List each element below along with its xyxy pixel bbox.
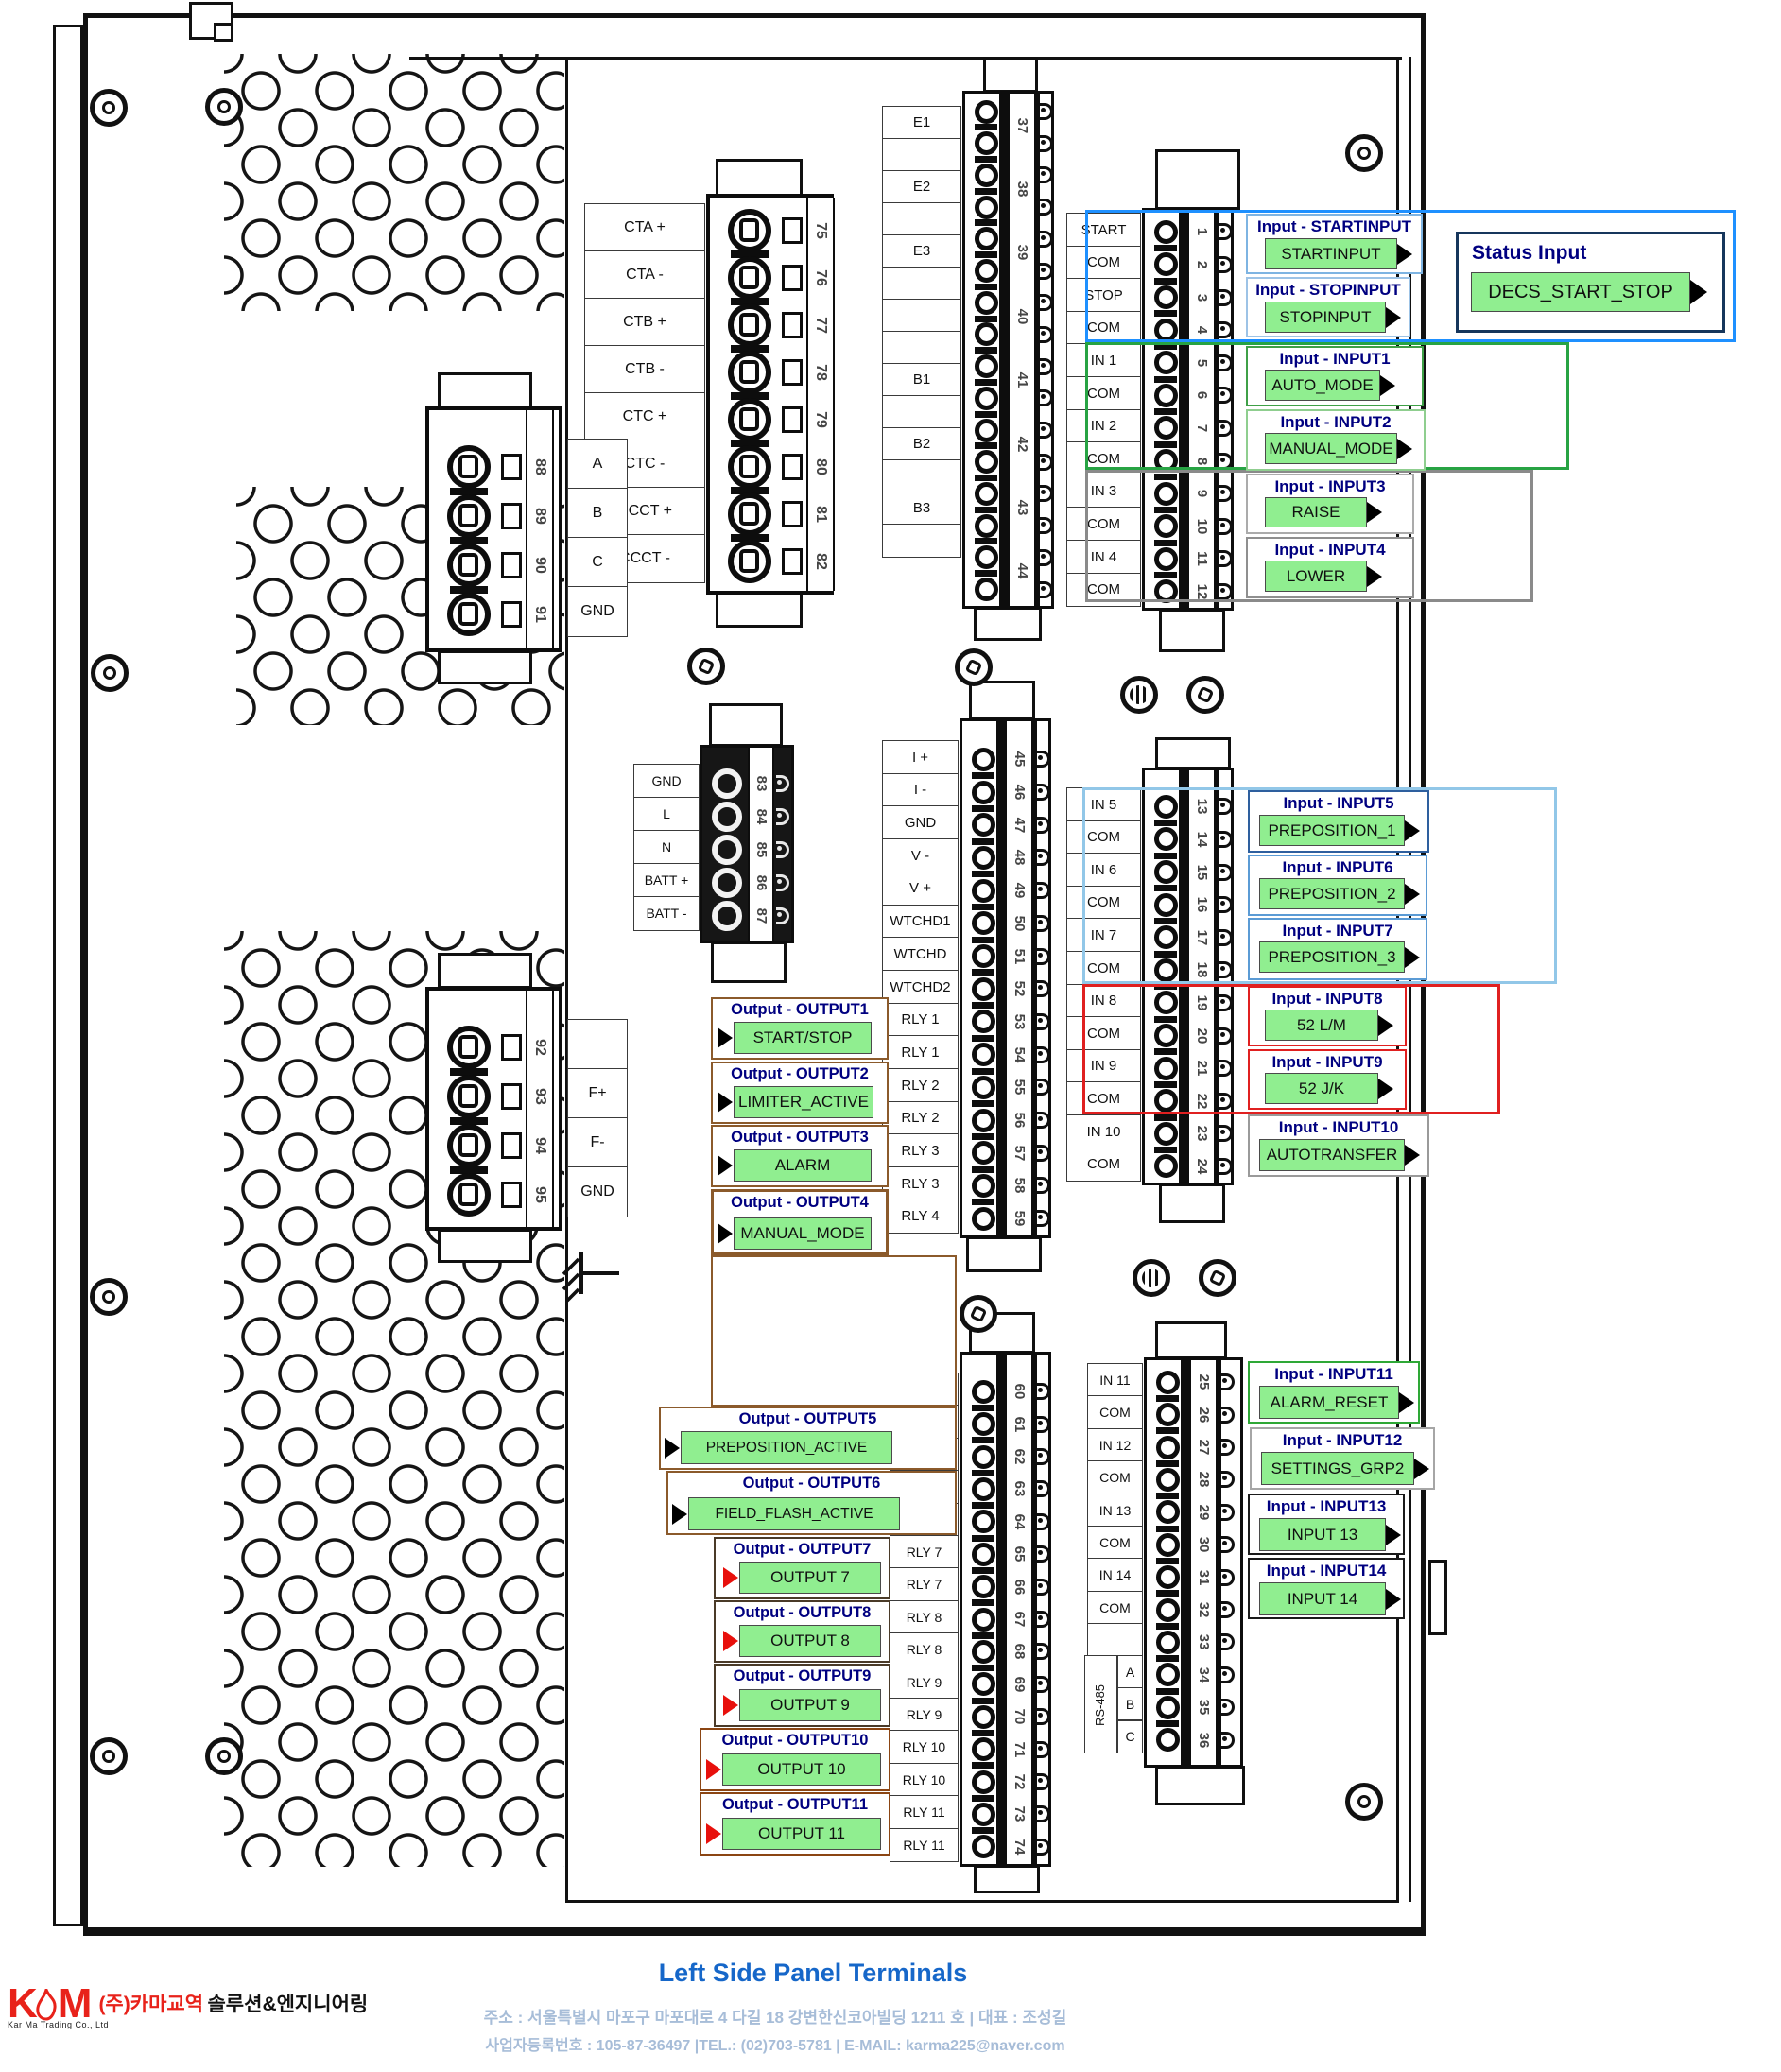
terminal-tick <box>975 442 997 449</box>
pwr-connector-cap <box>709 703 783 747</box>
annotation-header: Output - OUTPUT2 <box>713 1065 887 1083</box>
screw-terminal-icon <box>972 1076 995 1099</box>
terminal-tick <box>975 188 997 195</box>
terminal-label: IN 13 <box>1087 1494 1143 1528</box>
terminal-number: 28 <box>1196 1465 1211 1494</box>
signal-value-input-13: INPUT 13 <box>1259 1518 1386 1551</box>
terminal-tick <box>972 1405 994 1411</box>
screw-center <box>1357 147 1371 160</box>
terminal-number: 93 <box>532 1082 547 1111</box>
screw-terminal-icon <box>1154 1154 1178 1178</box>
terminal-number: 61 <box>1012 1410 1027 1439</box>
terminal-label <box>882 331 961 365</box>
arrow-icon <box>1378 1079 1393 1099</box>
screw-terminal-icon <box>975 482 998 506</box>
terminal-number: 67 <box>1012 1605 1027 1633</box>
screw-terminal-icon <box>1156 1403 1180 1426</box>
terminal-clamp-icon <box>739 549 759 573</box>
signal-value-input-8: 52 L/M <box>1265 1010 1378 1041</box>
screw-terminal-icon <box>972 1705 995 1729</box>
terminal-label: B2 <box>882 427 961 461</box>
wire-clamp-icon <box>1040 231 1053 248</box>
terminal-label: RLY 2 <box>882 1101 959 1135</box>
rs485-label-cell: RS-485 <box>1084 1655 1117 1753</box>
company-logo: K M (주)카마교역 솔루션&엔지니어링 Kar Ma Trading Co.… <box>8 1985 368 2029</box>
terminal-label: N <box>633 830 700 865</box>
terminal-tick <box>972 838 994 845</box>
terminal-label: CTB - <box>584 345 705 394</box>
terminal-tick <box>972 1567 994 1574</box>
abc-connector-cap <box>438 372 532 408</box>
terminal-number: 42 <box>1014 430 1029 458</box>
terminal-clamp-icon <box>458 1183 478 1206</box>
wire-clamp-dot <box>1222 1443 1227 1448</box>
logo-subtitle: Kar Ma Trading Co., Ltd <box>8 2020 368 2029</box>
arrow-icon <box>718 1092 733 1113</box>
wire-clamp-icon <box>1037 1545 1050 1563</box>
wire-clamp-icon <box>1040 422 1053 439</box>
wire-clamp-icon <box>1037 1513 1050 1530</box>
wire-clamp-icon <box>1037 1480 1050 1497</box>
terminal-number: 94 <box>532 1131 547 1160</box>
terminal-number: 49 <box>1012 876 1027 905</box>
terminal-clamp-icon <box>739 455 759 478</box>
screw-terminal-icon <box>972 1445 995 1469</box>
terminal-number: 63 <box>1012 1475 1027 1503</box>
terminal-number: 27 <box>1196 1433 1211 1461</box>
terminal-number: 57 <box>1012 1139 1027 1167</box>
screw-terminal-icon <box>972 1010 995 1033</box>
wire-clamp-icon <box>1221 1471 1235 1488</box>
f-terminal-block: 92939495 <box>425 987 562 1231</box>
wire-clamp-icon <box>1037 1112 1050 1129</box>
screw-terminal-icon <box>975 578 998 601</box>
left-rail <box>53 25 83 1926</box>
wire-clamp-dot <box>1220 1163 1225 1167</box>
terminal-tick <box>975 316 997 322</box>
terminal-label: RLY 1 <box>882 1003 959 1037</box>
screw-icon <box>1186 676 1224 714</box>
terminal-number: 43 <box>1014 493 1029 522</box>
terminal-tick <box>972 772 994 779</box>
annotation-header: Input - STOPINPUT <box>1248 281 1409 300</box>
wire-clamp-dot <box>1041 363 1046 368</box>
terminal-clamp-icon <box>739 360 759 384</box>
screw-terminal-icon <box>1156 1728 1180 1752</box>
screw-terminal-icon <box>1156 1371 1180 1394</box>
wire-clamp-icon <box>1040 517 1053 534</box>
terminal-label: CTA - <box>584 250 705 300</box>
terminal-label <box>567 1019 628 1070</box>
screw-terminal-icon <box>975 227 998 250</box>
page-title: Left Side Panel Terminals <box>227 1959 1399 1988</box>
wire-clamp-dot <box>1038 985 1043 990</box>
wire-clamp-dot <box>1041 299 1046 303</box>
terminal-label: GND <box>882 805 959 839</box>
terminal-tick <box>972 1632 994 1639</box>
terminal-label: WTCHD2 <box>882 970 959 1004</box>
annotation-header: Output - OUTPUT9 <box>716 1667 889 1685</box>
terminal-number: 24 <box>1194 1152 1209 1181</box>
wire-clamp-dot <box>1038 755 1043 760</box>
dia-connector-cap <box>1159 609 1225 652</box>
terminal-number: 82 <box>813 547 828 576</box>
terminal-number: 91 <box>532 600 547 629</box>
terminal-number: 60 <box>1012 1377 1027 1406</box>
pwr-terminal-block: 8384858687 <box>700 745 794 943</box>
wire-clamp-icon <box>1037 948 1050 965</box>
terminal-tick <box>972 937 994 943</box>
terminal-tick <box>972 1502 994 1509</box>
terminal-tick <box>972 1762 994 1769</box>
terminal-number: 76 <box>813 264 828 292</box>
divider <box>996 721 1005 1235</box>
rly-connector-cap <box>974 1865 1040 1893</box>
terminal-number: 35 <box>1196 1693 1211 1721</box>
wire-clamp-icon <box>1221 1373 1235 1390</box>
wire-clamp-dot <box>1222 1736 1227 1741</box>
screw-terminal-icon <box>712 868 742 898</box>
terminal-label: RLY 3 <box>882 1166 959 1200</box>
terminal-number: 80 <box>813 453 828 481</box>
terminal-tick <box>1156 1623 1179 1630</box>
terminal-tick <box>975 507 997 513</box>
wire-clamp-dot <box>1041 586 1046 591</box>
wire-clamp-icon <box>1040 485 1053 502</box>
terminal-tick <box>972 969 994 976</box>
terminal-label: RLY 1 <box>882 1035 959 1069</box>
terminal-label: COM <box>1087 1591 1143 1625</box>
terminal-tick <box>1156 1688 1179 1695</box>
screw-terminal-icon <box>972 1141 995 1165</box>
wire-clamp-dot <box>1038 1083 1043 1088</box>
wire-clamp-icon <box>1037 1145 1050 1162</box>
wire-clamp-dot <box>1038 1746 1043 1751</box>
annotation-header: Input - INPUT2 <box>1248 413 1424 432</box>
terminal-tick <box>975 379 997 386</box>
screw-terminal-icon <box>975 514 998 538</box>
signal-value-output-4: MANUAL_MODE <box>734 1217 872 1250</box>
screw-terminal-icon <box>975 291 998 315</box>
divider <box>999 94 1008 606</box>
terminal-label: B3 <box>882 492 961 526</box>
wire-clamp-dot <box>1041 394 1046 399</box>
terminal-number: 54 <box>1012 1041 1027 1069</box>
terminal-number: 26 <box>1196 1401 1211 1429</box>
wire-clamp-icon <box>1037 849 1050 866</box>
wire-clamp-dot <box>1038 1583 1043 1588</box>
screw-terminal-icon <box>1156 1598 1180 1622</box>
screw-center <box>1209 1269 1227 1287</box>
terminal-tick <box>972 871 994 877</box>
wire-clamp-icon <box>1037 751 1050 768</box>
right-tab <box>1428 1560 1447 1635</box>
screw-icon <box>687 647 725 685</box>
annotation-header: Output - OUTPUT6 <box>668 1475 955 1493</box>
terminal-tick <box>972 1698 994 1704</box>
terminal-label: E1 <box>882 106 961 140</box>
wire-clamp-dot <box>1038 1182 1043 1186</box>
terminal-number: 92 <box>532 1033 547 1062</box>
screw-terminal-icon <box>712 901 742 931</box>
screw-icon <box>205 88 243 126</box>
wire-clamp-icon <box>1037 784 1050 801</box>
screw-terminal-icon <box>972 1109 995 1132</box>
signal-value-output-2: LIMITER_ACTIVE <box>734 1086 873 1118</box>
terminal-number: 39 <box>1014 238 1029 267</box>
e-connector-cap <box>974 607 1042 641</box>
annotation-header: Input - INPUT4 <box>1248 541 1412 560</box>
terminal-clamp-icon <box>458 455 478 478</box>
terminal-number: 48 <box>1012 843 1027 872</box>
wire-clamp-icon <box>1037 1839 1050 1856</box>
screw-terminal-icon <box>972 1510 995 1533</box>
wire-clamp-dot <box>1038 1681 1043 1685</box>
terminal-tick <box>1156 1655 1179 1662</box>
terminal-number: 89 <box>532 502 547 530</box>
terminal-tick <box>972 1827 994 1834</box>
terminal-label: BATT + <box>633 863 700 898</box>
signal-value-input-11: ALARM_RESET <box>1259 1386 1399 1419</box>
terminal-label: IN 12 <box>1087 1428 1143 1462</box>
terminal-clamp-icon <box>458 1035 478 1059</box>
wire-clamp-dot <box>1038 1018 1043 1023</box>
signal-value-input-2: MANUAL_MODE <box>1265 433 1397 464</box>
logo-company-black: 솔루션&엔지니어링 <box>207 1994 368 2015</box>
wire-clamp-icon <box>1040 358 1053 375</box>
wire-clamp-dot <box>1041 171 1046 176</box>
arrow-icon <box>1405 947 1420 968</box>
terminal-label: COM <box>1066 1148 1141 1182</box>
terminal-number: 41 <box>1014 366 1029 394</box>
wire-clamp-dot <box>1222 1638 1227 1643</box>
wire-clamp-icon <box>1040 581 1053 598</box>
rs485-pin-cell: C <box>1117 1720 1143 1753</box>
terminal-tick <box>972 1068 994 1075</box>
rs485-pin-cell: B <box>1117 1687 1143 1720</box>
clamp-window <box>501 1083 522 1110</box>
terminal-tick <box>975 538 997 544</box>
screw-terminal-icon <box>972 1207 995 1231</box>
terminal-number: 88 <box>532 453 547 481</box>
signal-value-input-startinput: STARTINPUT <box>1265 238 1397 269</box>
annotation-header: Input - INPUT9 <box>1250 1053 1405 1072</box>
arrow-icon <box>1367 502 1382 523</box>
arrow-icon <box>1397 439 1412 459</box>
terminal-tick <box>972 904 994 910</box>
screw-terminal-icon <box>972 1575 995 1598</box>
screw-terminal-icon <box>972 879 995 903</box>
panel-left-line <box>565 57 568 1902</box>
wire-clamp-icon <box>1040 199 1053 216</box>
terminal-number: 66 <box>1012 1573 1027 1601</box>
annotation-header: Input - INPUT12 <box>1252 1431 1433 1450</box>
clamp-window <box>782 501 803 527</box>
terminal-label: RLY 3 <box>882 1133 959 1167</box>
screw-terminal-icon <box>975 450 998 474</box>
terminal-tick <box>972 1035 994 1042</box>
screw-terminal-icon <box>972 1412 995 1436</box>
logo-company-red: (주)카마교역 <box>98 1994 203 2015</box>
terminal-number: 45 <box>1012 745 1027 773</box>
screw-terminal-icon <box>972 1174 995 1198</box>
screw-center <box>102 1290 115 1304</box>
wire-clamp-dot <box>1041 331 1046 336</box>
signal-value-input-10: AUTOTRANSFER <box>1259 1139 1405 1171</box>
terminal-label: RLY 10 <box>890 1763 959 1797</box>
wire-clamp-dot <box>1038 1778 1043 1783</box>
screw-terminal-icon <box>1154 1122 1178 1146</box>
terminal-label: E2 <box>882 170 961 204</box>
screw-slot <box>1142 1269 1161 1287</box>
screw-center <box>102 101 115 114</box>
terminal-label: GND <box>567 586 628 637</box>
annotation-header: Output - OUTPUT10 <box>701 1732 889 1750</box>
terminal-number: 46 <box>1012 778 1027 806</box>
screw-terminal-icon <box>1156 1631 1180 1654</box>
wire-clamp-dot <box>1222 1476 1227 1480</box>
terminal-tick <box>975 156 997 163</box>
terminal-tick <box>1154 1147 1177 1153</box>
terminal-tick <box>1156 1526 1179 1532</box>
terminal-tick <box>1156 1558 1179 1564</box>
terminal-clamp-icon <box>739 407 759 431</box>
terminal-label: BATT - <box>633 896 700 931</box>
terminal-number: 32 <box>1196 1596 1211 1624</box>
annotation-header: Output - OUTPUT8 <box>716 1604 889 1622</box>
screw-terminal-icon <box>1156 1696 1180 1719</box>
panel-top-line <box>409 57 1402 60</box>
wire-clamp-dot <box>1222 1703 1227 1708</box>
arrow-icon <box>665 1438 680 1459</box>
wire-clamp-icon <box>1040 454 1053 471</box>
screw-terminal-icon <box>975 100 998 124</box>
terminal-tick <box>972 1795 994 1802</box>
wire-clamp-icon <box>1219 1158 1233 1175</box>
wire-clamp-dot <box>1038 821 1043 826</box>
screw-icon <box>1133 1259 1170 1297</box>
signal-value-input-9: 52 J/K <box>1265 1073 1378 1104</box>
terminal-label: RLY 9 <box>890 1698 959 1732</box>
terminal-tick <box>972 1002 994 1009</box>
screw-center <box>1197 686 1215 704</box>
screw-terminal-icon <box>972 1543 995 1566</box>
terminal-number: 95 <box>532 1181 547 1209</box>
arrow-icon <box>1386 1589 1401 1610</box>
wire-clamp-icon <box>1037 1416 1050 1433</box>
pwr-connector-cap <box>711 941 787 983</box>
terminal-label <box>882 395 961 429</box>
arrow-icon <box>1405 1145 1420 1165</box>
terminal-clamp-icon <box>458 1133 478 1157</box>
terminal-tick <box>972 1535 994 1542</box>
wire-clamp-icon <box>1040 103 1053 120</box>
wire-clamp-dot <box>1038 1648 1043 1652</box>
clamp-window <box>501 552 522 578</box>
screw-center <box>970 1305 988 1323</box>
wire-clamp-icon <box>1037 1448 1050 1465</box>
screw-terminal-icon <box>972 1477 995 1501</box>
wire-clamp-dot <box>1038 788 1043 793</box>
screw-icon <box>90 89 128 127</box>
terminal-tick <box>1156 1493 1179 1499</box>
arrow-icon <box>1380 375 1395 396</box>
terminal-number: 36 <box>1196 1726 1211 1754</box>
terminal-number: 75 <box>813 216 828 245</box>
wire-clamp-dot <box>777 912 782 917</box>
terminal-number: 47 <box>1012 811 1027 839</box>
wire-clamp-dot <box>1041 140 1046 145</box>
annotation-header: Input - INPUT6 <box>1250 858 1426 877</box>
terminal-number: 38 <box>1014 175 1029 203</box>
wire-clamp-icon <box>1037 1643 1050 1660</box>
wire-clamp-icon <box>1037 1676 1050 1693</box>
wire-clamp-dot <box>1041 108 1046 112</box>
terminal-number: 78 <box>813 358 828 387</box>
signal-value-status: DECS_START_STOP <box>1471 272 1690 312</box>
wire-clamp-dot <box>777 780 782 785</box>
dic-terminal-block: 252627282930313233343536 <box>1144 1357 1243 1768</box>
annotation-header: Input - INPUT10 <box>1250 1118 1427 1137</box>
wire-clamp-icon <box>1037 882 1050 899</box>
wire-clamp-dot <box>1222 1574 1227 1579</box>
screw-icon <box>91 654 129 692</box>
screw-terminal-icon <box>972 813 995 837</box>
arrow-icon <box>1405 884 1420 905</box>
annotation-header: Input - INPUT7 <box>1250 922 1426 941</box>
terminal-label: I - <box>882 773 959 807</box>
terminal-tick <box>972 1133 994 1140</box>
clamp-window <box>782 406 803 433</box>
terminal-tick <box>972 1100 994 1107</box>
terminal-number: 25 <box>1196 1368 1211 1396</box>
arrow-icon <box>723 1567 738 1588</box>
annotation-header: Output - OUTPUT5 <box>661 1410 955 1428</box>
screw-terminal-icon <box>1156 1436 1180 1459</box>
signal-value-output-9: OUTPUT 9 <box>739 1689 881 1721</box>
ct-connector-cap <box>716 159 803 197</box>
terminal-label: F+ <box>567 1068 628 1119</box>
terminal-label: RLY 11 <box>890 1828 959 1862</box>
annotation-header: Input - INPUT1 <box>1248 350 1422 369</box>
terminal-tick <box>1156 1720 1179 1727</box>
annotation-header: Output - OUTPUT3 <box>713 1129 887 1147</box>
screw-icon <box>205 1737 243 1775</box>
terminal-number: 59 <box>1012 1204 1027 1233</box>
wire-clamp-dot <box>1038 1713 1043 1718</box>
terminal-clamp-icon <box>458 602 478 626</box>
f-connector-cap <box>438 953 532 989</box>
wire-clamp-dot <box>1038 1518 1043 1523</box>
terminal-clamp-icon <box>458 553 478 577</box>
clamp-window <box>782 217 803 244</box>
terminal-label <box>882 267 961 301</box>
terminal-label: RLY 11 <box>890 1795 959 1829</box>
terminal-tick <box>1156 1460 1179 1467</box>
screw-terminal-icon <box>1156 1500 1180 1524</box>
terminal-clamp-icon <box>739 218 759 242</box>
terminal-tick <box>1154 1114 1177 1121</box>
signal-value-output-1: START/STOP <box>734 1022 872 1054</box>
annotation-header: Input - STARTINPUT <box>1248 217 1421 236</box>
terminal-number: 85 <box>753 836 769 864</box>
signal-value-input-3: RAISE <box>1265 497 1367 527</box>
terminal-number: 52 <box>1012 975 1027 1003</box>
terminal-label: RLY 2 <box>882 1068 959 1102</box>
e-terminal-block: 3738394041424344 <box>962 91 1054 609</box>
clamp-window <box>501 454 522 480</box>
terminal-number: 86 <box>753 869 769 897</box>
